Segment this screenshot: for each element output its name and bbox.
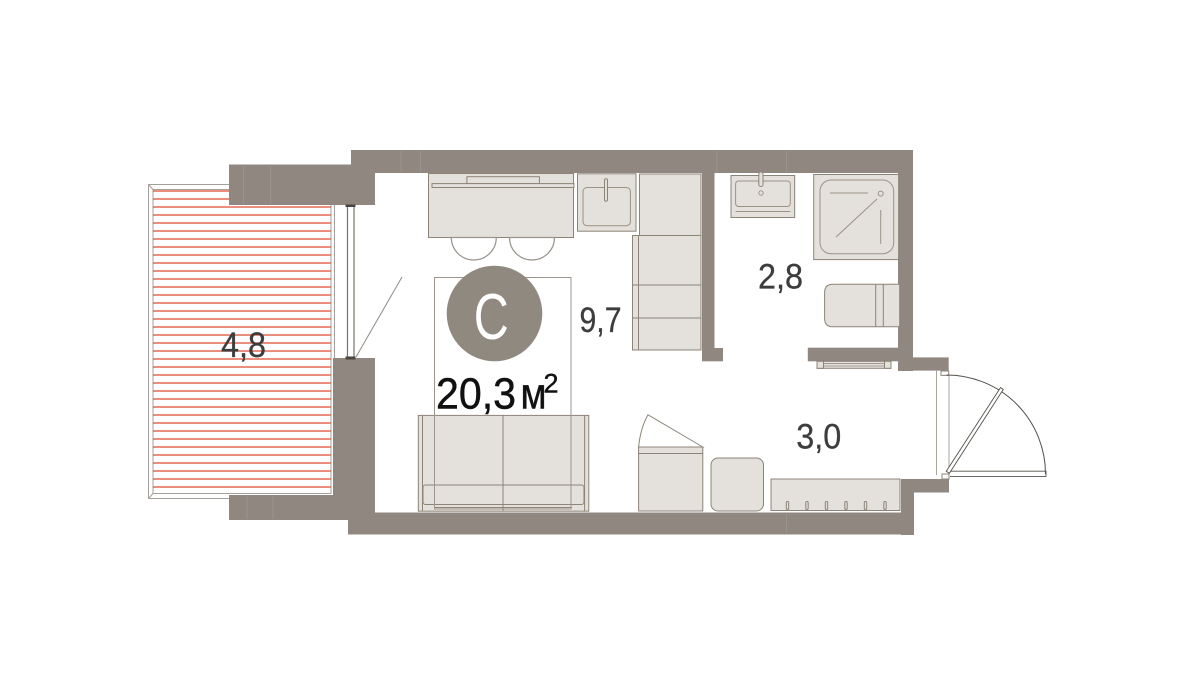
svg-text:С: С	[474, 281, 509, 353]
svg-text:2,8: 2,8	[758, 258, 803, 297]
svg-text:2: 2	[544, 368, 559, 398]
svg-text:3,0: 3,0	[796, 417, 841, 456]
svg-text:20,3: 20,3	[436, 369, 516, 418]
svg-text:9,7: 9,7	[580, 301, 622, 340]
svg-text:4,8: 4,8	[221, 326, 266, 365]
